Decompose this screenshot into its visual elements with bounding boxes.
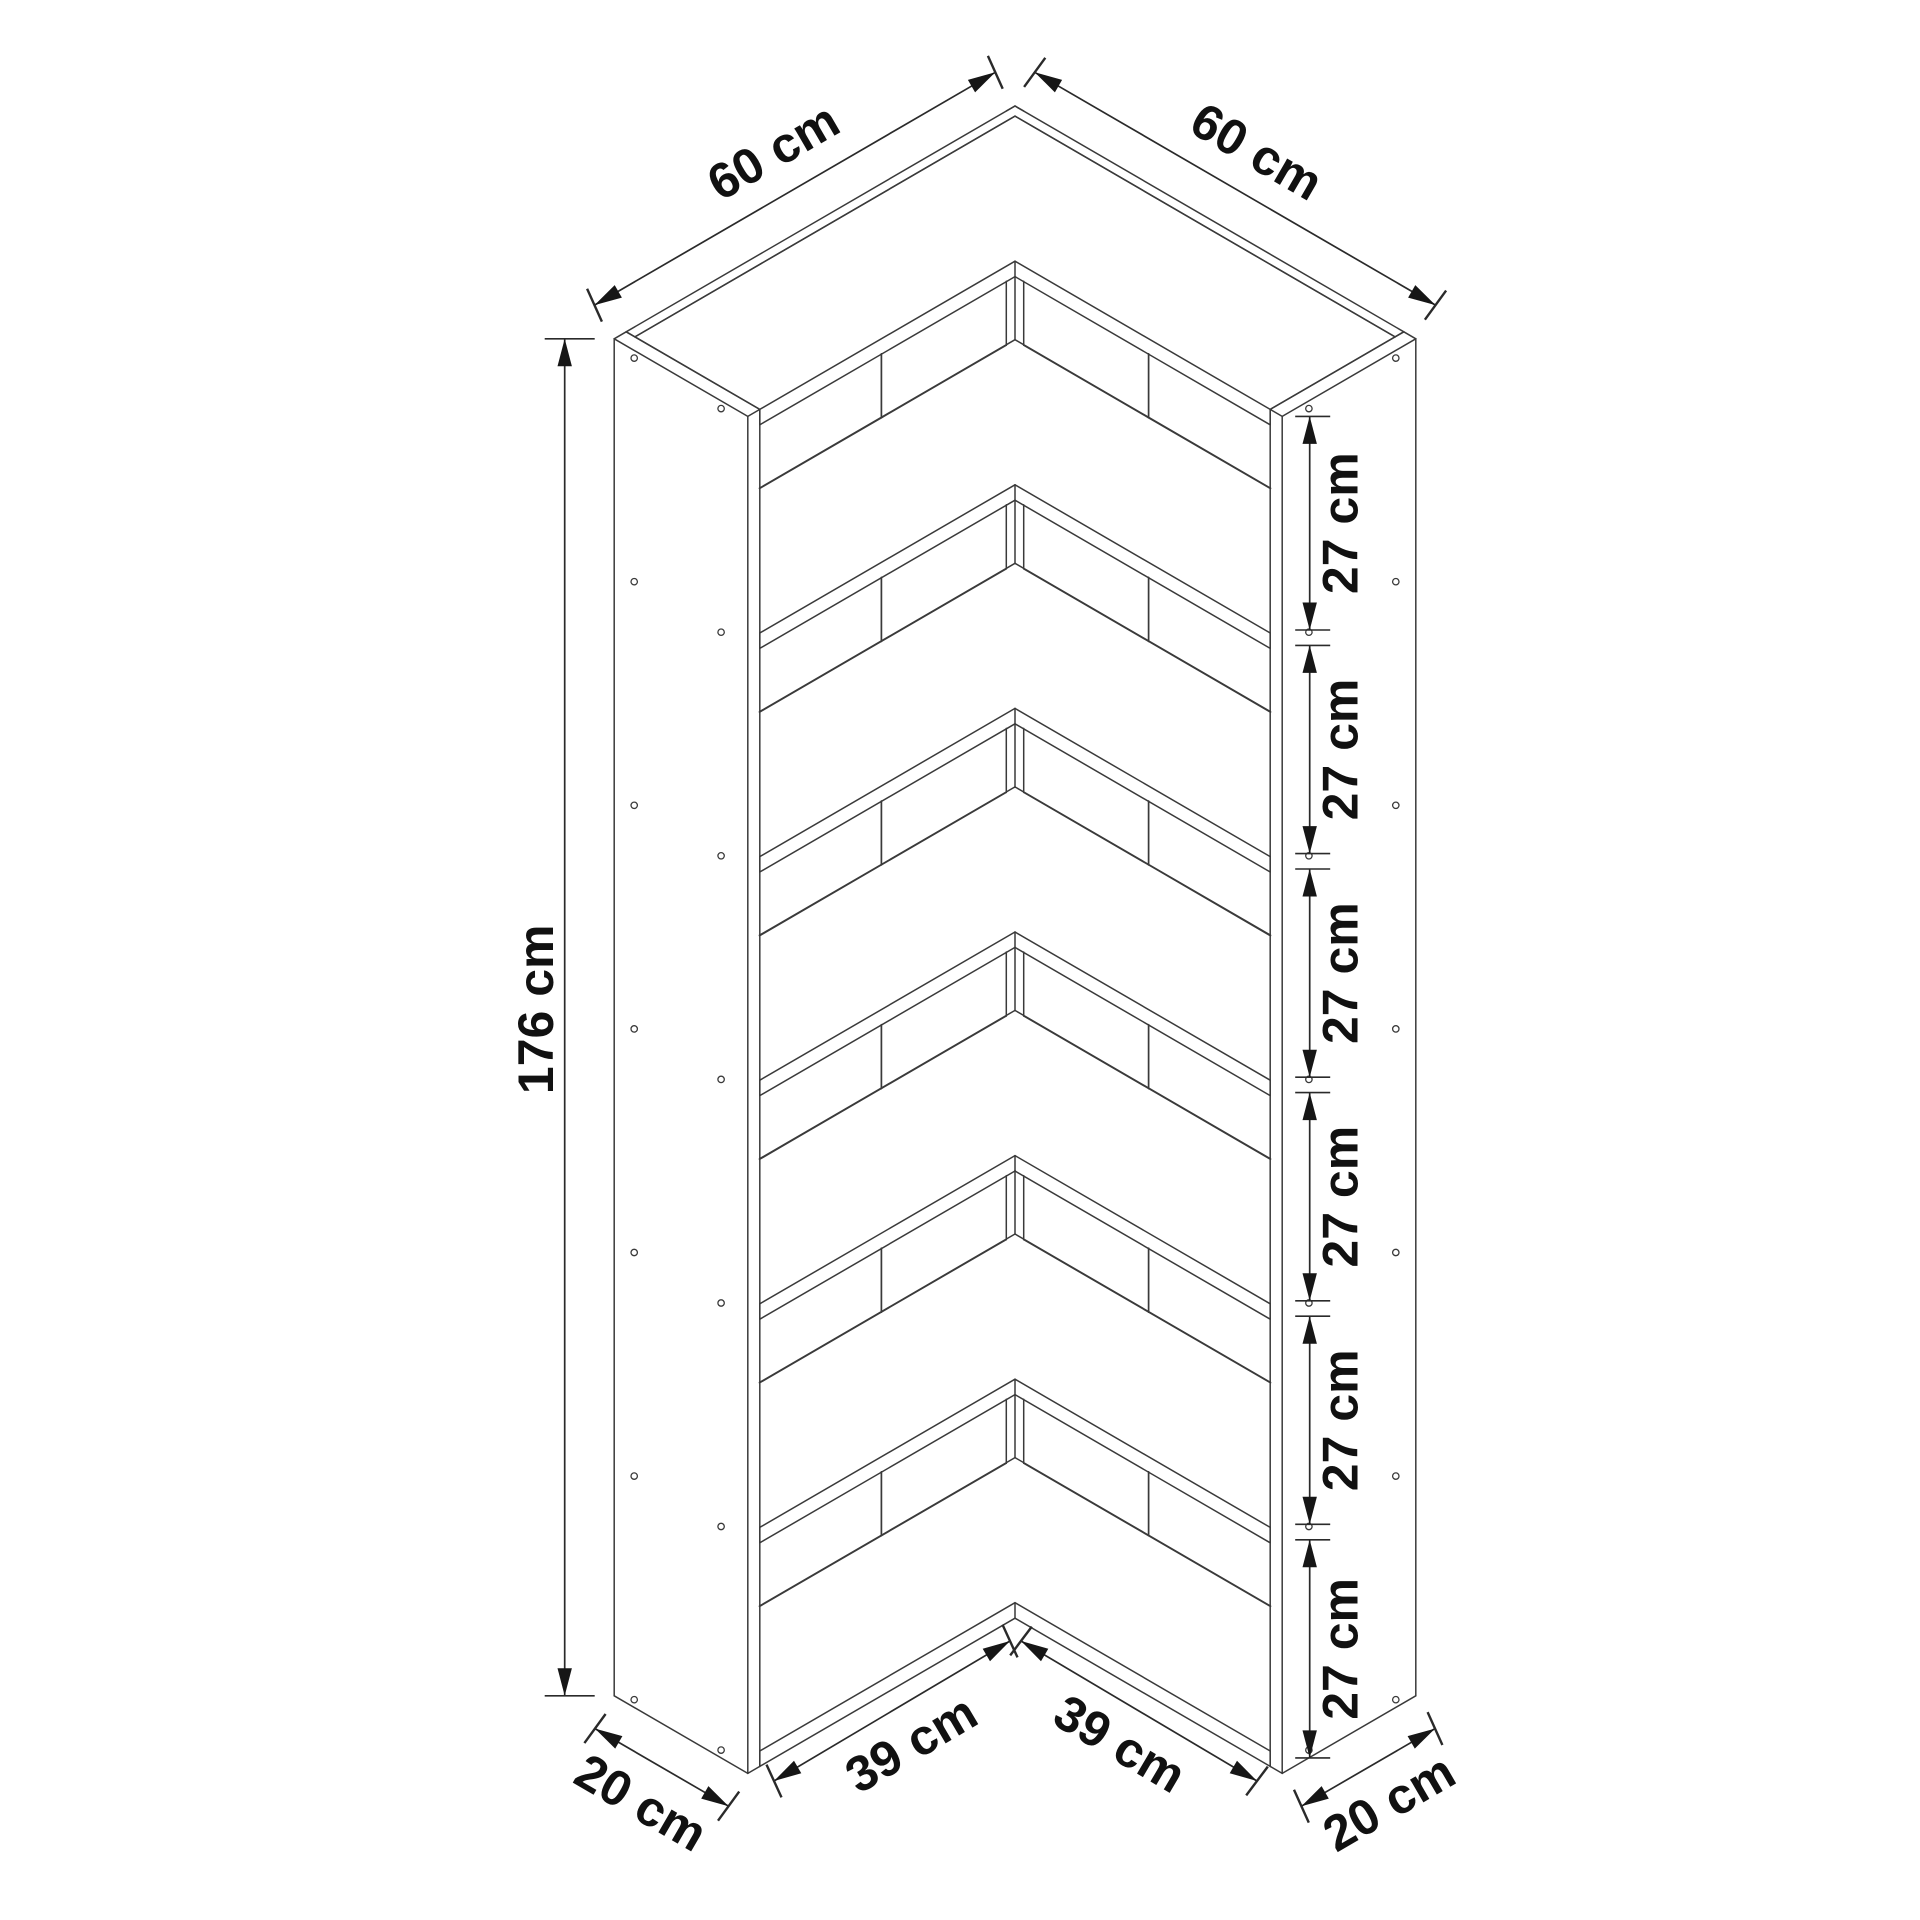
svg-text:27 cm: 27 cm: [1313, 902, 1369, 1044]
svg-text:27 cm: 27 cm: [1313, 679, 1369, 821]
svg-text:176 cm: 176 cm: [508, 925, 564, 1095]
svg-text:27 cm: 27 cm: [1313, 1126, 1369, 1268]
svg-text:27 cm: 27 cm: [1313, 452, 1369, 594]
svg-text:27 cm: 27 cm: [1313, 1578, 1369, 1720]
svg-text:27 cm: 27 cm: [1313, 1349, 1369, 1491]
